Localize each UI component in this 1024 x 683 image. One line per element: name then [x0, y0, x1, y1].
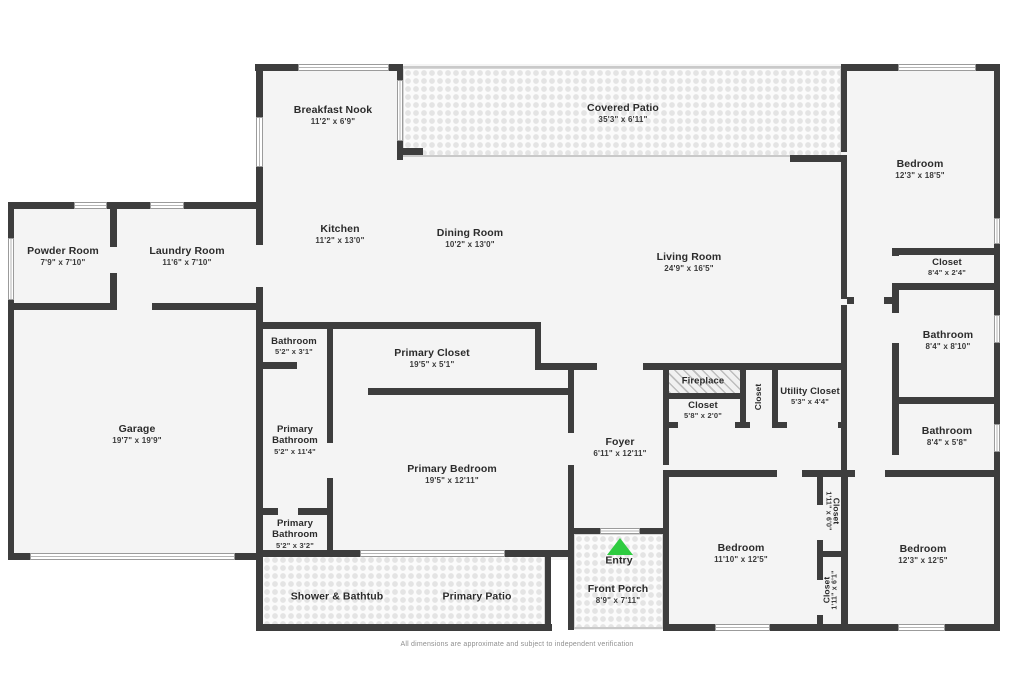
wall: [817, 615, 823, 624]
window: [994, 218, 1000, 244]
room-label-bedroom-top-right: Bedroom 12'3" x 18'5": [895, 158, 945, 180]
wall: [568, 368, 574, 433]
patio-outline: [403, 66, 841, 68]
wall: [400, 148, 423, 155]
room-label-dining-room: Dining Room 10'2" x 13'0": [437, 227, 503, 249]
wall: [663, 422, 678, 428]
wall: [772, 368, 778, 428]
room-label-primary-bedroom: Primary Bedroom 19'5" x 12'11": [407, 463, 497, 485]
room-label-bathroom-hall: Bathroom 8'4" x 8'10": [923, 329, 973, 351]
wall: [847, 297, 854, 304]
room-label-entry: Entry: [605, 555, 632, 568]
room-label-primary-bathroom-small: Primary Bathroom 5'2" x 3'2": [260, 518, 330, 550]
window: [994, 424, 1000, 452]
wall: [256, 362, 297, 369]
room-label-bedroom-bottom-left: Bedroom 11'10" x 12'5": [714, 542, 768, 564]
wall: [841, 305, 847, 477]
window: [397, 80, 403, 141]
room-label-laundry-room: Laundry Room 11'6" x 7'10": [149, 245, 224, 267]
wall: [298, 508, 333, 515]
wall: [884, 297, 892, 304]
window: [30, 553, 235, 560]
wall: [838, 422, 845, 428]
room-label-foyer: Foyer 6'11" x 12'11": [593, 436, 646, 458]
entry-direction-triangle-icon: [607, 538, 633, 555]
room-label-garage: Garage 19'7" x 19'9": [112, 423, 162, 445]
room-label-covered-patio: Covered Patio 35'3" x 6'11": [587, 102, 659, 124]
wall: [8, 202, 257, 209]
wall: [663, 368, 669, 465]
disclaimer-text: All dimensions are approximate and subje…: [317, 641, 717, 648]
wall: [994, 64, 1000, 631]
wall: [735, 422, 750, 428]
wall: [568, 465, 574, 533]
room-label-powder-room: Powder Room 7'9" x 7'10": [27, 245, 99, 267]
floor-plan: Breakfast Nook 11'2" x 6'9" Covered Pati…: [0, 0, 1024, 683]
wall: [368, 388, 568, 395]
wall: [892, 343, 899, 397]
window: [994, 315, 1000, 343]
room-label-bathroom-right: Bathroom 8'4" x 5'8": [922, 425, 972, 447]
room-label-fireplace: Fireplace: [682, 375, 725, 386]
wall: [256, 322, 541, 329]
wall: [110, 202, 117, 247]
wall: [663, 624, 1000, 631]
wall: [772, 422, 787, 428]
wall: [885, 470, 1000, 477]
room-label-shower-bathtub: Shower & Bathtub: [291, 591, 384, 604]
room-label-front-porch: Front Porch 8'9" x 7'11": [588, 583, 649, 605]
room-label-utility-closet: Utility Closet 5'3" x 4'4": [780, 386, 839, 406]
window: [600, 528, 640, 534]
wall: [535, 328, 541, 370]
wall: [568, 533, 574, 630]
wall: [892, 397, 1000, 404]
patio-outline: [574, 627, 664, 629]
wall: [397, 64, 403, 80]
wall: [892, 248, 899, 256]
room-label-primary-bathroom-large: Primary Bathroom 5'2" x 11'4": [260, 424, 330, 456]
room-label-closet-mid: Closet: [753, 384, 763, 411]
room-label-primary-patio: Primary Patio: [443, 591, 512, 604]
room-label-kitchen: Kitchen 11'2" x 13'0": [315, 223, 364, 245]
wall: [841, 158, 847, 299]
window: [298, 64, 389, 71]
room-label-closet-hall: Closet 8'4" x 2'4": [928, 257, 966, 277]
wall: [663, 470, 669, 630]
room-label-closet-vertical-bottom: Closet 1'11" x 6'1": [822, 570, 841, 609]
wall: [640, 528, 669, 534]
wall: [892, 248, 1000, 255]
wall: [841, 64, 847, 152]
room-label-closet-vertical-top: Closet 1'11" x 6'0": [823, 491, 842, 530]
wall: [8, 303, 115, 310]
window: [150, 202, 184, 209]
wall: [256, 624, 552, 631]
wall: [892, 403, 899, 455]
window: [8, 238, 14, 300]
window: [360, 550, 505, 557]
wall: [740, 368, 746, 428]
wall: [152, 303, 263, 310]
room-label-bathroom-small: Bathroom 5'2" x 3'1": [271, 336, 317, 356]
wall: [668, 470, 777, 477]
wall: [663, 393, 746, 399]
room-label-bedroom-bottom-right: Bedroom 12'3" x 12'5": [898, 543, 948, 565]
wall: [256, 508, 278, 515]
wall: [790, 155, 847, 162]
window: [74, 202, 107, 209]
wall: [545, 557, 551, 631]
patio-outline: [403, 155, 791, 157]
window: [898, 64, 976, 71]
room-label-breakfast-nook: Breakfast Nook 11'2" x 6'9": [294, 104, 372, 126]
window: [256, 117, 263, 167]
room-label-closet-foyer: Closet 5'8" x 2'0": [684, 400, 722, 420]
wall: [841, 477, 848, 624]
window: [715, 624, 770, 631]
room-label-primary-closet: Primary Closet 19'5" x 5'1": [394, 347, 470, 369]
wall: [892, 283, 1000, 290]
wall: [845, 470, 855, 477]
wall: [256, 560, 263, 631]
room-label-living-room: Living Room 24'9" x 16'5": [657, 251, 722, 273]
window: [898, 624, 945, 631]
wall: [892, 290, 899, 313]
